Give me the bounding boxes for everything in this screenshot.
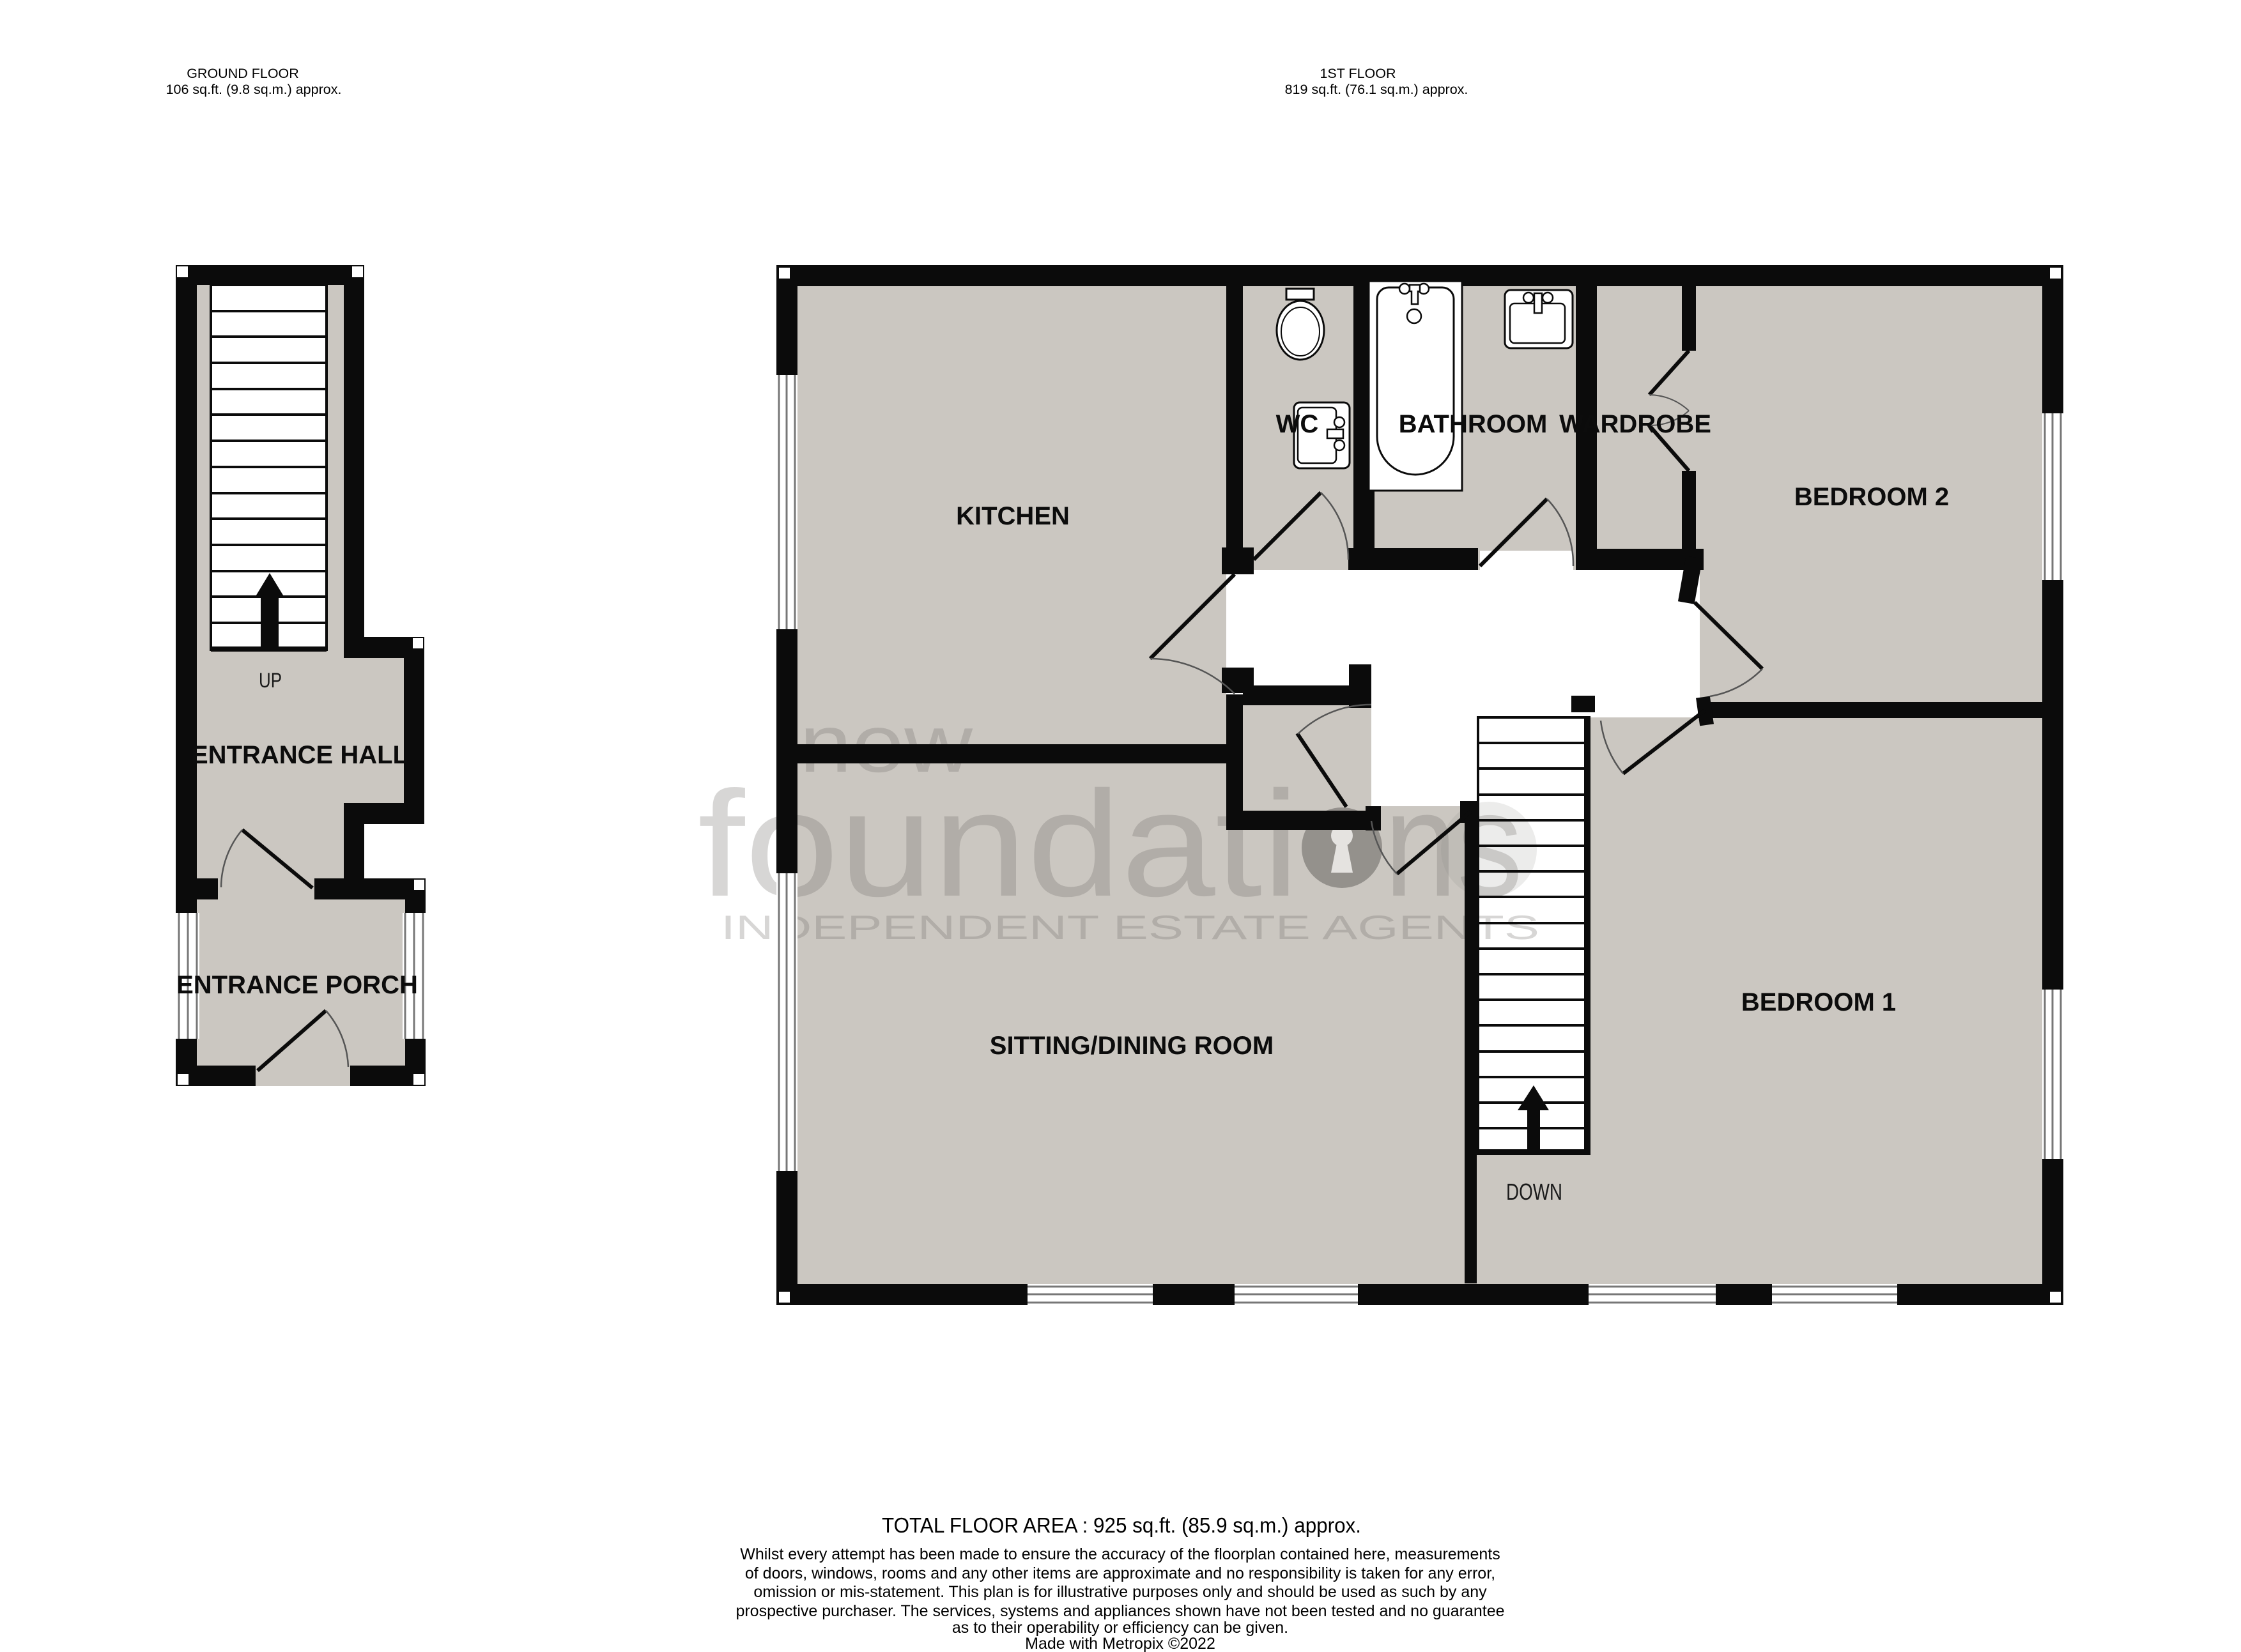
svg-text:WARDROBE: WARDROBE xyxy=(1559,410,1711,438)
svg-text:KITCHEN: KITCHEN xyxy=(956,502,1070,530)
svg-text:of doors, windows, rooms and a: of doors, windows, rooms and any other i… xyxy=(745,1564,1495,1582)
svg-text:BATHROOM: BATHROOM xyxy=(1399,410,1548,438)
svg-text:BEDROOM 1: BEDROOM 1 xyxy=(1741,988,1896,1016)
svg-text:as to their operability or eff: as to their operability or efficiency ca… xyxy=(952,1619,1288,1637)
svg-text:TOTAL FLOOR AREA : 925 sq.ft.: TOTAL FLOOR AREA : 925 sq.ft. (85.9 sq.m… xyxy=(882,1513,1361,1537)
svg-text:ENTRANCE HALL: ENTRANCE HALL xyxy=(191,741,408,769)
svg-text:INDEPENDENT ESTATE AGENTS: INDEPENDENT ESTATE AGENTS xyxy=(721,909,1539,947)
svg-text:1ST FLOOR: 1ST FLOOR xyxy=(1320,66,1396,81)
svg-text:prospective purchaser. The ser: prospective purchaser. The services, sys… xyxy=(735,1602,1504,1620)
svg-text:Made with Metropix ©2022: Made with Metropix ©2022 xyxy=(1025,1635,1215,1652)
svg-text:BEDROOM 2: BEDROOM 2 xyxy=(1794,483,1949,511)
svg-text:106 sq.ft. (9.8 sq.m.) approx.: 106 sq.ft. (9.8 sq.m.) approx. xyxy=(166,82,342,97)
svg-text:UP: UP xyxy=(259,669,282,692)
svg-text:GROUND FLOOR: GROUND FLOOR xyxy=(187,66,299,81)
svg-text:DOWN: DOWN xyxy=(1506,1179,1562,1205)
svg-text:SITTING/DINING ROOM: SITTING/DINING ROOM xyxy=(990,1032,1274,1060)
svg-text:WC: WC xyxy=(1276,410,1319,438)
svg-text:ENTRANCE PORCH: ENTRANCE PORCH xyxy=(176,971,418,999)
svg-text:omission or mis-statement. Thi: omission or mis-statement. This plan is … xyxy=(753,1583,1487,1601)
svg-text:819 sq.ft. (76.1 sq.m.) approx: 819 sq.ft. (76.1 sq.m.) approx. xyxy=(1285,82,1468,97)
svg-text:Whilst every attempt has been: Whilst every attempt has been made to en… xyxy=(740,1545,1500,1563)
